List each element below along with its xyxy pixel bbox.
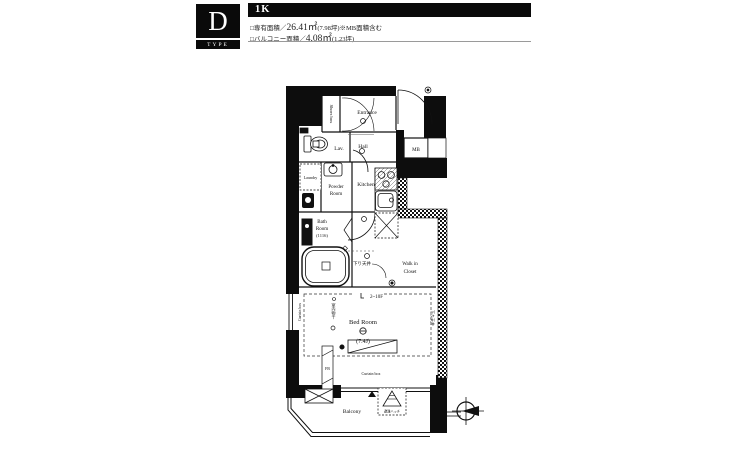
lowered-ceiling-label: 下り天井 — [353, 260, 371, 267]
laundry-label: Laundry — [304, 175, 318, 180]
hatched-walls — [398, 178, 447, 378]
lavatory-label: Lav. — [334, 146, 344, 152]
spec2-value: 4.08㎡ — [306, 34, 332, 44]
meter-box-label: MB — [412, 148, 420, 153]
compass-icon — [452, 397, 484, 425]
unit-type-label: TYPE — [196, 40, 240, 49]
powder-room-label-2: Room — [330, 192, 342, 197]
bath-room-label-1: Bath — [317, 220, 327, 225]
water-heater-icon — [302, 193, 314, 208]
header-divider — [248, 41, 531, 42]
bath-room-label-2: Room — [316, 227, 328, 232]
indoor-drying-label: 室内物干 — [332, 302, 337, 320]
floor-range-label: 2~10F — [370, 295, 383, 300]
hall-label: Hall — [358, 144, 368, 150]
bath-room-size-label: (1116) — [316, 233, 328, 238]
lowered-ceiling-side-label: 下り天井 — [430, 310, 436, 326]
corridor-ceiling-note — [343, 246, 376, 251]
unit-type-letter: D — [196, 4, 240, 38]
kitchen-counter — [375, 168, 397, 211]
curtain-box-bottom-label: Curtain box — [362, 371, 381, 376]
balcony-label: Balcony — [343, 409, 362, 415]
flower-box-label: FB — [325, 366, 330, 371]
washbasin-icon — [324, 163, 342, 176]
kitchen-label: Kitchen — [357, 182, 375, 188]
escape-hatch-label: 避難ハッチ — [384, 409, 400, 414]
floorplan-drawing: Shoes box Entrance Lav. Hall MB Laundry … — [283, 80, 493, 470]
curtain-box-side-label: Curtain box — [298, 303, 302, 321]
shoes-box-label: Shoes box — [329, 105, 334, 124]
entrance-label: Entrance — [357, 110, 377, 116]
refrigerator-space — [375, 213, 398, 238]
powder-room-label-1: Powder — [328, 185, 344, 190]
bedroom-size-label: (7.4J) — [356, 338, 370, 345]
bedroom-label: Bed Room — [349, 319, 377, 326]
floorplan-page: D TYPE 1K □専有面積／26.41㎡(7.98坪)※MB面積含む □バル… — [0, 0, 730, 470]
layout-type-bar: 1K — [248, 3, 531, 17]
bedroom-light-symbol — [360, 328, 366, 334]
walk-in-closet-label-2: Closet — [404, 270, 417, 275]
walk-in-closet-label-1: Walk in — [402, 262, 418, 267]
balcony-equipment-space — [305, 389, 333, 403]
